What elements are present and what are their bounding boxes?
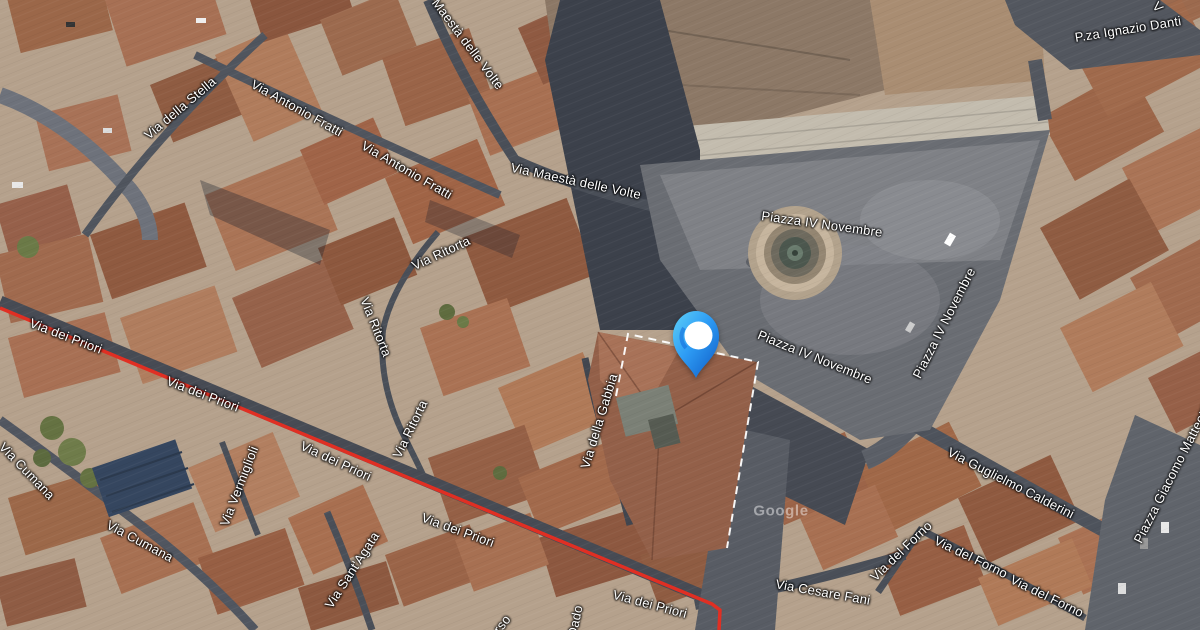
street-label-via-sant-agata: Via Sant'Agata xyxy=(322,529,383,611)
street-label-maest-delle-volte: Maestà delle Volte xyxy=(429,0,507,92)
street-label-via-antonio-fratti: Via Antonio Fratti xyxy=(359,138,455,202)
street-label-via-cumana: Via Cumana xyxy=(0,439,58,502)
street-label-v: V xyxy=(1149,0,1166,15)
street-label-piazza-iv-novembre: Piazza IV Novembre xyxy=(756,327,875,387)
street-label-via-dei-priori: Via dei Priori xyxy=(165,373,242,414)
street-label-via-ritorta: Via Ritorta xyxy=(357,295,394,359)
street-label-p-za-ignazio-danti: P.za Ignazio Danti xyxy=(1074,13,1182,45)
label-layer: Via della StellaVia Antonio FrattiVia An… xyxy=(0,0,1200,630)
street-label-piazza-giacomo-matteotti: Piazza Giacomo Matteotti xyxy=(1131,402,1200,545)
street-label-via-dei-priori: Via dei Priori xyxy=(28,315,105,356)
pin-icon xyxy=(660,307,732,379)
street-label-via-dei-priori: Via dei Priori xyxy=(298,438,373,484)
street-label-via-maest-delle-volte: Via Maestà delle Volte xyxy=(509,160,642,202)
street-label-via-guglielmo-calderini: Via Guglielmo Calderini xyxy=(945,444,1077,521)
street-label-via-cesare-fani: Via Cesare Fani xyxy=(774,576,871,607)
street-label-via-cumana: Via Cumana xyxy=(104,517,176,565)
street-label-via-dei-priori: Via dei Priori xyxy=(611,587,689,621)
street-label-via-della-stella: Via della Stella xyxy=(141,74,219,143)
street-label-via-dei-priori: Via dei Priori xyxy=(420,510,497,550)
street-label-via-del-forno: Via del Forno xyxy=(932,533,1010,581)
street-label-via-della-gabbia: Via della Gabbia xyxy=(577,372,620,470)
street-label-piazza-iv-novembre: Piazza IV Novembre xyxy=(910,265,979,381)
street-label-via-del-forno: Via del Forno xyxy=(1008,572,1086,620)
street-label-via-ritorta: Via Ritorta xyxy=(409,233,472,273)
google-watermark: Google xyxy=(753,503,808,520)
satellite-map[interactable]: Via della StellaVia Antonio FrattiVia An… xyxy=(0,0,1200,630)
street-label-via-vermiglioli: Via Vermiglioli xyxy=(217,444,261,528)
street-label-rso: rso xyxy=(490,612,513,630)
street-label-via-antonio-fratti: Via Antonio Fratti xyxy=(249,77,346,140)
street-label-dado: Dado xyxy=(564,604,585,630)
street-label-via-del-forno: Via del Forno xyxy=(867,518,935,584)
street-label-piazza-iv-novembre: Piazza IV Novembre xyxy=(761,208,884,240)
location-pin[interactable] xyxy=(660,307,732,384)
street-label-via-ritorta: Via Ritorta xyxy=(390,398,431,461)
